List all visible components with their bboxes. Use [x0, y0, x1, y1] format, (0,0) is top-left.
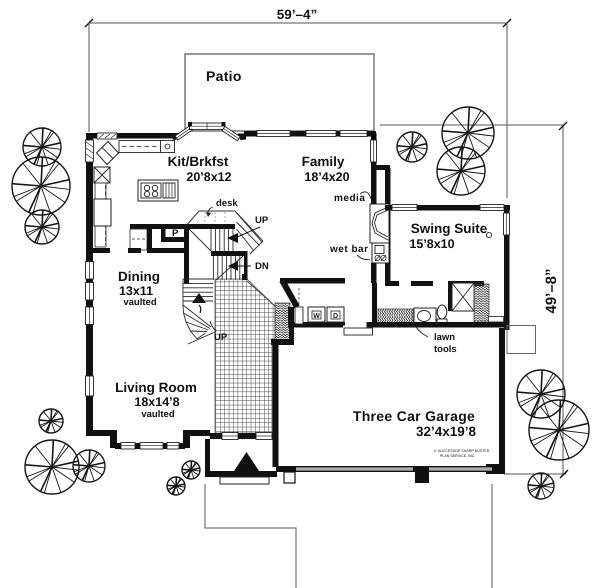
svg-text:vaulted: vaulted: [123, 297, 156, 308]
svg-text:W: W: [313, 313, 320, 320]
svg-text:Swing Suite: Swing Suite: [411, 221, 488, 236]
svg-text:15’8x10: 15’8x10: [409, 237, 454, 251]
svg-text:Three Car Garage: Three Car Garage: [353, 408, 475, 424]
svg-text:© SUCCESSOR SHARP BUSTER: © SUCCESSOR SHARP BUSTER: [434, 449, 490, 453]
svg-text:49’–8”: 49’–8”: [543, 268, 560, 313]
svg-text:Kit/Brkfst: Kit/Brkfst: [168, 154, 229, 169]
svg-text:Family: Family: [302, 154, 345, 169]
svg-text:18’4x20: 18’4x20: [304, 170, 349, 184]
svg-text:tools: tools: [434, 344, 457, 355]
svg-text:PLAN SERVICE, INC.: PLAN SERVICE, INC.: [440, 454, 475, 458]
svg-text:wet bar: wet bar: [329, 244, 369, 255]
svg-text:UP: UP: [214, 332, 228, 343]
svg-text:UP: UP: [255, 215, 269, 226]
svg-text:lawn: lawn: [434, 332, 455, 343]
svg-text:Patio: Patio: [206, 68, 242, 84]
svg-text:desk: desk: [216, 198, 238, 209]
svg-text:DN: DN: [255, 261, 269, 272]
svg-text:Dining: Dining: [118, 269, 160, 284]
svg-text:18x14’8: 18x14’8: [134, 395, 179, 409]
svg-text:32’4x19’8: 32’4x19’8: [416, 424, 477, 439]
svg-text:P: P: [172, 228, 179, 239]
svg-text:59’–4”: 59’–4”: [277, 7, 318, 22]
svg-text:20’8x12: 20’8x12: [186, 170, 231, 184]
svg-text:Living Room: Living Room: [115, 380, 197, 395]
svg-text:D: D: [333, 313, 338, 320]
svg-text:13x11: 13x11: [119, 284, 153, 298]
svg-text:vaulted: vaulted: [141, 409, 174, 420]
svg-text:media: media: [334, 193, 365, 204]
